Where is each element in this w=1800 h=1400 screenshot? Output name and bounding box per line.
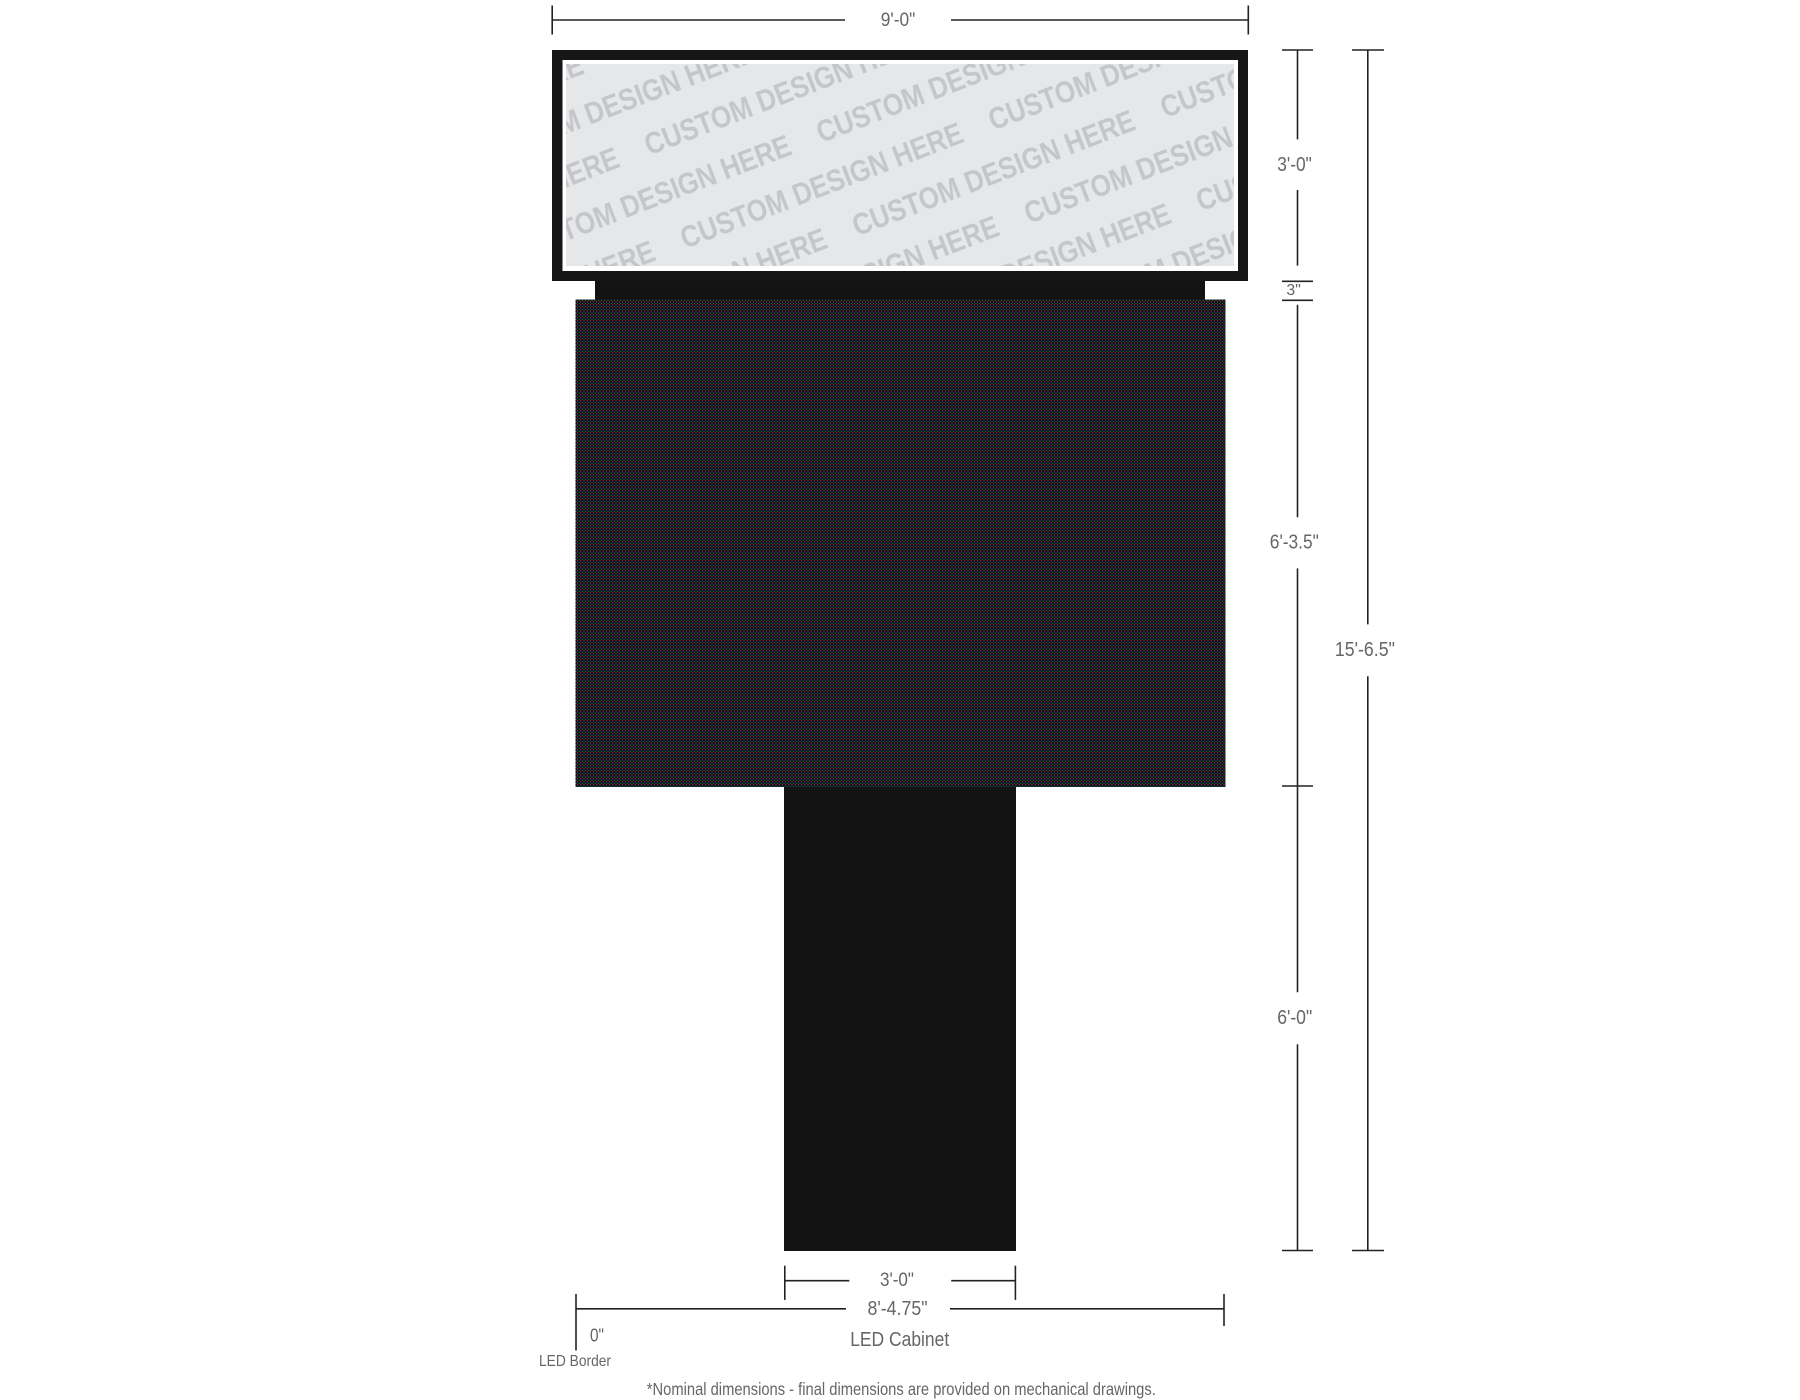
svg-text:*Nominal dimensions - final di: *Nominal dimensions - final dimensions a… <box>647 1379 1156 1399</box>
svg-text:3'-0": 3'-0" <box>880 1270 914 1291</box>
svg-text:LED Border: LED Border <box>539 1353 612 1370</box>
svg-text:15'-6.5": 15'-6.5" <box>1335 639 1395 661</box>
svg-text:LED Cabinet: LED Cabinet <box>850 1329 949 1351</box>
svg-text:6'-0": 6'-0" <box>1277 1007 1312 1029</box>
svg-text:3'-0": 3'-0" <box>1277 154 1312 176</box>
svg-text:6'-3.5": 6'-3.5" <box>1270 532 1319 554</box>
svg-text:0": 0" <box>590 1324 604 1345</box>
svg-text:8'-4.75": 8'-4.75" <box>868 1298 928 1320</box>
svg-text:9'-0": 9'-0" <box>881 9 916 31</box>
svg-text:3": 3" <box>1286 282 1301 299</box>
